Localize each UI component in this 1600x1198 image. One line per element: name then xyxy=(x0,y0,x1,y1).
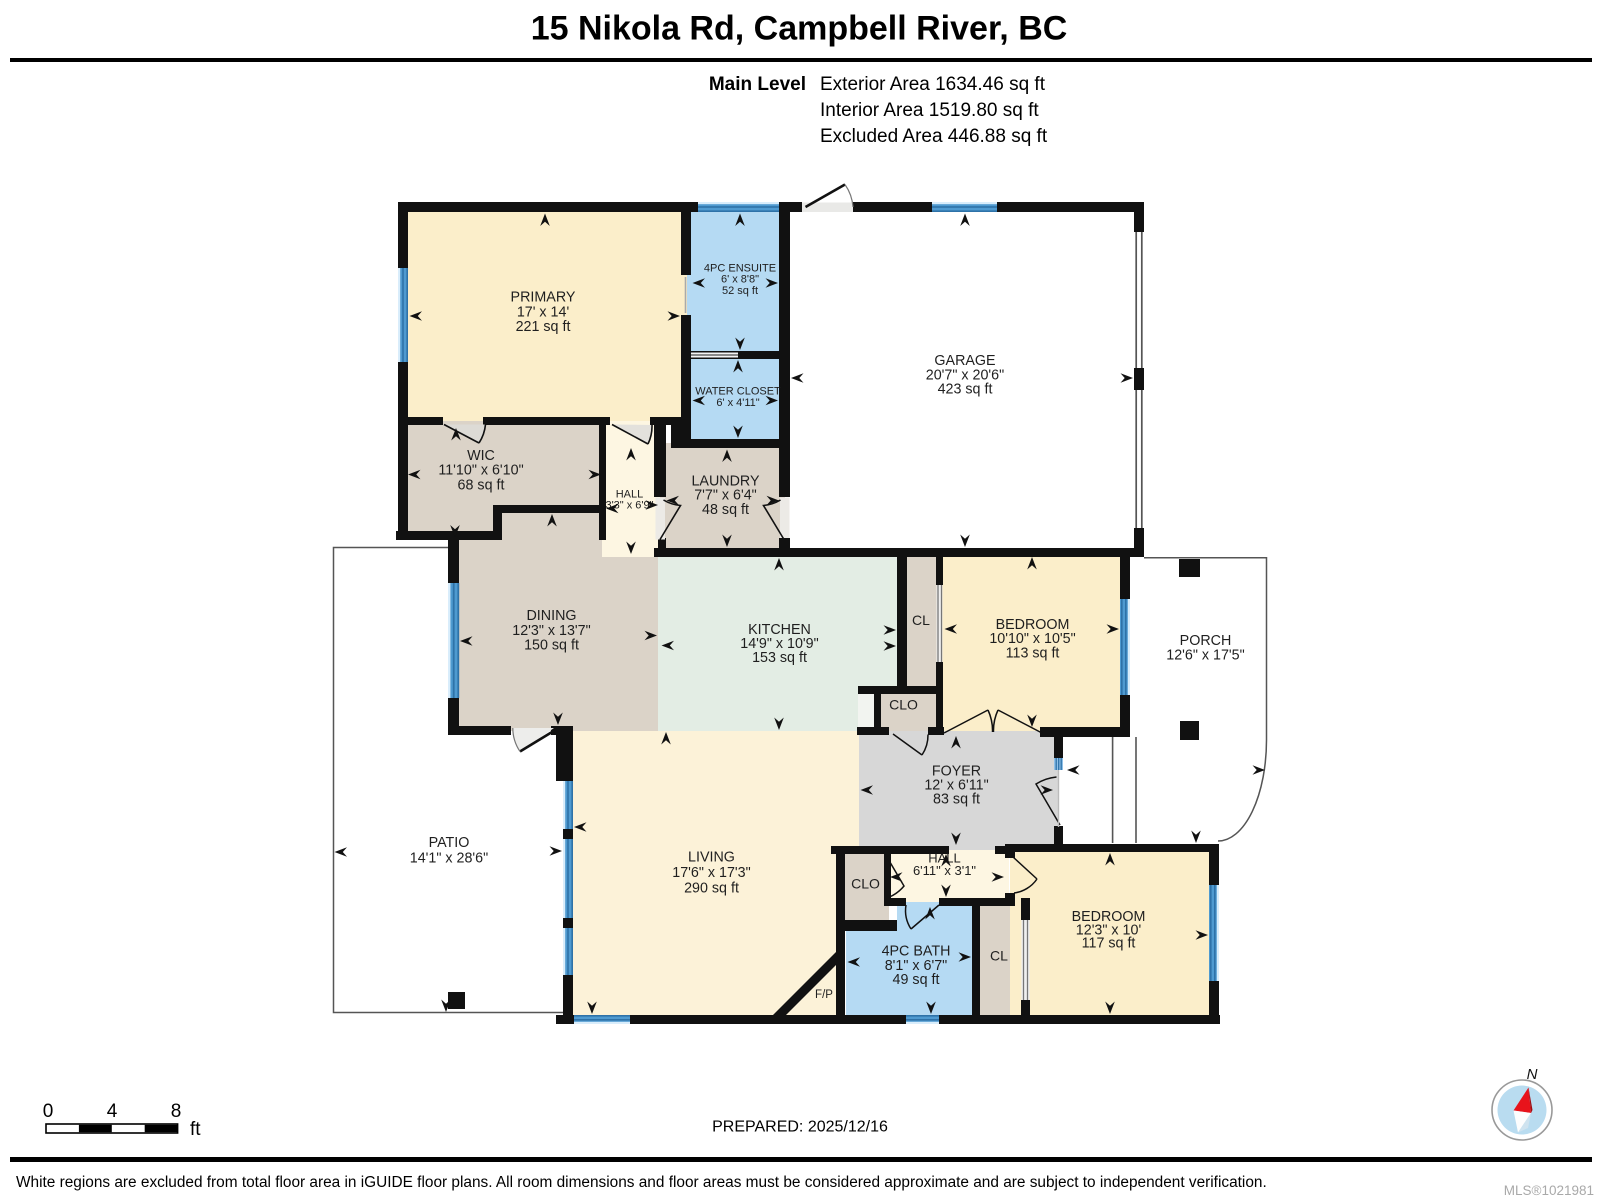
svg-text:Interior Area 1519.80 sq ft: Interior Area 1519.80 sq ft xyxy=(820,100,1039,121)
svg-text:15 Nikola Rd, Campbell River,: 15 Nikola Rd, Campbell River, BC xyxy=(531,10,1068,48)
svg-text:Excluded Area 446.88 sq ft: Excluded Area 446.88 sq ft xyxy=(820,126,1048,147)
svg-text:PRIMARY17' x 14'221 sq ft: PRIMARY17' x 14'221 sq ft xyxy=(511,290,576,336)
svg-text:0: 0 xyxy=(43,1101,54,1122)
svg-text:CL: CL xyxy=(990,948,1008,964)
svg-text:PREPARED: 2025/12/16: PREPARED: 2025/12/16 xyxy=(712,1119,888,1136)
svg-text:F/P: F/P xyxy=(815,989,833,1001)
svg-text:FOYER12' x 6'11"83 sq ft: FOYER12' x 6'11"83 sq ft xyxy=(924,764,988,808)
svg-text:White regions are excluded fro: White regions are excluded from total fl… xyxy=(16,1174,1267,1191)
svg-text:8: 8 xyxy=(171,1101,182,1122)
svg-text:CL: CL xyxy=(912,612,930,628)
svg-text:ft: ft xyxy=(190,1119,201,1140)
svg-text:CLO: CLO xyxy=(889,697,918,713)
svg-text:Exterior Area 1634.46 sq ft: Exterior Area 1634.46 sq ft xyxy=(820,74,1046,95)
svg-text:CLO: CLO xyxy=(851,876,880,892)
svg-text:Main Level: Main Level xyxy=(709,74,806,95)
svg-text:N: N xyxy=(1527,1066,1538,1083)
svg-text:4: 4 xyxy=(107,1101,118,1122)
svg-text:MLS®1021981: MLS®1021981 xyxy=(1504,1183,1594,1198)
svg-text:BEDROOM12'3" x 10'117 sq ft: BEDROOM12'3" x 10'117 sq ft xyxy=(1072,909,1146,952)
